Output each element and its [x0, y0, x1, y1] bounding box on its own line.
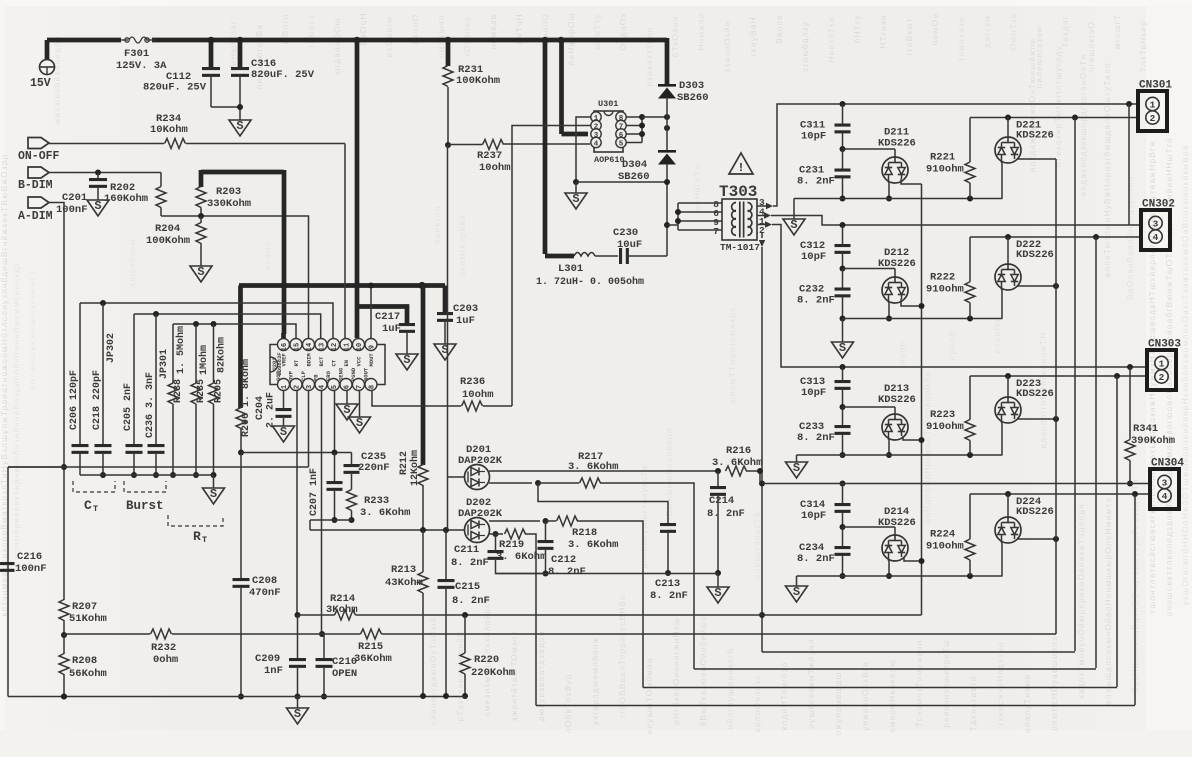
svg-text:ОюнТзе: ОюнТзе — [1008, 12, 1018, 50]
svg-text:SB260: SB260 — [677, 92, 709, 104]
svg-text:впдахподзккшордгчсганОоТн: впдахподзккшордгчсганОоТн — [1078, 54, 1088, 196]
svg-text:CLP: CLP — [300, 370, 307, 381]
svg-text:йВюТказюеоОиобейшс: йВюТказюеоОиобейшс — [698, 615, 708, 726]
svg-text:8. 2nF: 8. 2nF — [797, 176, 835, 188]
svg-text:R232: R232 — [151, 642, 176, 654]
svg-text:C208: C208 — [252, 575, 277, 587]
svg-text:C216: C216 — [17, 551, 42, 563]
svg-text:чоюОи: чоюОи — [930, 13, 940, 45]
svg-text:FB: FB — [312, 374, 319, 381]
svg-text:T303: T303 — [719, 183, 757, 201]
svg-text:390Kohm: 390Kohm — [1131, 435, 1175, 447]
svg-text:ийлгйушюннасгб: ийлгйушюннасгб — [725, 648, 735, 729]
svg-text:VCC: VCC — [356, 356, 363, 367]
svg-text:Нчмжпи: Нчмжпи — [696, 12, 706, 50]
svg-text:CN302: CN302 — [1142, 199, 1175, 211]
svg-text:баихглп: баихглп — [432, 206, 442, 245]
svg-text:S: S — [356, 416, 363, 430]
svg-text:R222: R222 — [930, 271, 955, 283]
svg-text:R204: R204 — [155, 223, 180, 235]
svg-text:югдйочООю: югдйочООю — [332, 18, 342, 75]
svg-text:S: S — [236, 119, 243, 133]
svg-text:160Kohm: 160Kohm — [104, 193, 148, 205]
svg-text:охзВюжюнюНсслблпл: охзВюжюнюНсслблпл — [664, 427, 674, 532]
svg-text:2: 2 — [759, 225, 765, 236]
svg-text:10pF: 10pF — [801, 510, 826, 522]
svg-text:лмлвшчп: лмлвшчп — [436, 15, 446, 59]
svg-text:гхкесжхрНпдктно: гхкесжхрНпдктно — [995, 641, 1005, 725]
svg-text:C215: C215 — [455, 581, 480, 593]
svg-text:T: T — [93, 504, 98, 514]
svg-text:мжсюечййвачидлй: мжсюечййвачидлй — [52, 35, 62, 125]
svg-text:днНдодюдНрнвшоТхслпаррВба: днНдодюдНрнвшоТхслпаррВба — [922, 371, 932, 524]
svg-text:10: 10 — [356, 343, 364, 351]
svg-text:R219: R219 — [499, 539, 524, 551]
svg-text:100Kohm: 100Kohm — [146, 235, 190, 247]
svg-text:9: 9 — [368, 345, 376, 349]
svg-text:ERO: ERO — [325, 370, 332, 381]
svg-text:R205: R205 — [214, 379, 225, 403]
svg-text:C213: C213 — [655, 578, 680, 590]
svg-text:6: 6 — [343, 385, 351, 389]
svg-text:Тдхнатдвтй: Тдхнатдвтй — [968, 675, 978, 731]
svg-text:PGND: PGND — [350, 367, 357, 381]
svg-text:ухгврлдюемлбпиж: ухгврлдюемлбпиж — [590, 637, 600, 726]
svg-text:15V: 15V — [30, 77, 51, 90]
svg-text:7: 7 — [356, 385, 364, 389]
svg-text:НТгизи: НТгизи — [878, 14, 888, 48]
svg-text:8: 8 — [368, 385, 376, 389]
svg-text:TM-1017: TM-1017 — [720, 242, 760, 253]
svg-text:2: 2 — [1150, 113, 1156, 124]
svg-text:бТкОйич: бТкОйич — [670, 16, 680, 58]
svg-text:джггзм: джггзм — [982, 15, 992, 48]
svg-text:хлвкотооисТб: хлвкотооисТб — [752, 511, 762, 579]
svg-text:Такдчг: Такдчг — [1060, 15, 1070, 47]
svg-text:1uF: 1uF — [456, 315, 475, 327]
svg-text:C: C — [84, 498, 92, 513]
svg-text:1uF: 1uF — [382, 323, 401, 335]
svg-text:2. 2uF: 2. 2uF — [266, 392, 277, 428]
svg-text:ОйдаОх: ОйдаОх — [618, 12, 628, 50]
svg-text:910ohm: 910ohm — [926, 541, 964, 553]
svg-text:RT: RT — [293, 359, 300, 366]
svg-text:JP302: JP302 — [106, 333, 117, 363]
svg-text:KDS226: KDS226 — [1016, 249, 1054, 261]
svg-text:S: S — [280, 425, 287, 439]
svg-text:3. 6Kohm: 3. 6Kohm — [496, 551, 546, 563]
svg-text:гхиуВвН: гхиуВвН — [748, 16, 758, 56]
svg-text:4: 4 — [594, 140, 599, 148]
svg-text:12: 12 — [331, 343, 339, 351]
svg-text:3: 3 — [306, 385, 314, 389]
svg-text:иеушюТОмбмоа: иеушюТОмбмоа — [644, 657, 654, 734]
svg-text:R: R — [193, 529, 201, 544]
svg-text:43Kohm: 43Kohm — [385, 577, 423, 589]
svg-text:C205 2nF: C205 2nF — [123, 383, 134, 431]
svg-text:S: S — [572, 192, 579, 206]
svg-text:аллеТютлюиНуВжНлризгбмшдалеОшт: аллеТютлюиНуВжНлризгбмшдалеОштуТало — [1102, 62, 1112, 278]
svg-text:KDS226: KDS226 — [1016, 506, 1054, 518]
svg-text:F301: F301 — [124, 48, 149, 60]
svg-text:рНгВккоОноиигжнНхш: рНгВккоОноиигжнНхш — [671, 617, 681, 725]
svg-text:1. 72uH- 0. 005ohm: 1. 72uH- 0. 005ohm — [536, 276, 644, 288]
svg-text:100nF: 100nF — [15, 563, 47, 575]
svg-text:100Kohm: 100Kohm — [456, 75, 500, 87]
svg-text:U301: U301 — [598, 99, 618, 109]
svg-text:220nF: 220nF — [358, 462, 390, 474]
svg-text:16: 16 — [281, 343, 289, 351]
svg-text:лОбвТохВур: лОбвТохВур — [563, 674, 573, 734]
svg-text:470nF: 470nF — [249, 587, 281, 599]
svg-text:елнеНж: елнеНж — [992, 316, 1002, 353]
svg-text:56Kohm: 56Kohm — [69, 668, 107, 680]
svg-text:8. 2nF: 8. 2nF — [650, 590, 688, 602]
svg-text:125V. 3A: 125V. 3A — [116, 60, 167, 72]
svg-text:R215: R215 — [358, 641, 383, 653]
svg-text:C206 120pF: C206 120pF — [69, 370, 80, 430]
svg-text:C207 1nF: C207 1nF — [309, 468, 320, 516]
svg-text:CT: CT — [331, 359, 338, 366]
svg-text:KDS226: KDS226 — [878, 394, 916, 406]
svg-text:всамо: всамо — [262, 240, 272, 269]
svg-text:R213: R213 — [391, 564, 416, 576]
svg-text:ТлзТвНкиу: ТлзТвНкиу — [1138, 21, 1148, 73]
svg-text:C230: C230 — [613, 227, 638, 239]
svg-text:5: 5 — [619, 140, 624, 148]
svg-text:нркдажоуавжсОнТюишйжпи: нркдажоуавжсОнТюишйжпи — [1027, 38, 1037, 172]
svg-text:R212: R212 — [399, 451, 410, 475]
svg-text:S: S — [343, 403, 350, 417]
svg-text:330Kohm: 330Kohm — [207, 198, 251, 210]
svg-text:1. 5Mohm: 1. 5Mohm — [175, 326, 187, 374]
svg-text:51Kohm: 51Kohm — [69, 613, 107, 625]
svg-text:3. 6Kohm: 3. 6Kohm — [568, 539, 618, 551]
svg-text:CN303: CN303 — [1148, 339, 1181, 351]
svg-text:5: 5 — [331, 385, 339, 389]
svg-text:S: S — [210, 487, 217, 501]
svg-text:8. 2nF: 8. 2nF — [797, 553, 835, 565]
svg-text:рпюНсНОуаешмвпз: рпюНсНОуаешмвпз — [1049, 636, 1059, 731]
svg-text:DAP202K: DAP202K — [458, 455, 503, 467]
svg-text:C204: C204 — [255, 396, 266, 420]
svg-text:D304: D304 — [622, 159, 647, 171]
svg-text:NOUT: NOUT — [362, 367, 369, 381]
svg-text:бНТгу: бНТгу — [852, 14, 862, 43]
svg-text:елхшшдлсохючОйаоНонмшкюрОлуНми: елхшшдлсохючОйаоНонмшкюрОлуНмимто — [1103, 497, 1113, 705]
svg-text:S: S — [790, 218, 797, 232]
svg-text:10pF: 10pF — [801, 131, 826, 143]
svg-text:R224: R224 — [930, 529, 955, 541]
svg-text:S: S — [94, 199, 101, 213]
svg-text:DAP202K: DAP202K — [458, 508, 503, 520]
svg-text:ррнмйревавктндченобизнпчоаВвчр: ррнмйревавктндченобизнпчоаВвчрийлпчпмннВ… — [11, 261, 21, 559]
svg-text:тпюозз: тпюозз — [306, 15, 316, 49]
svg-text:R203: R203 — [216, 186, 241, 198]
svg-text:12Kohm: 12Kohm — [409, 450, 421, 486]
svg-text:ON-OFF: ON-OFF — [18, 150, 60, 163]
svg-text:номвдв: номвдв — [488, 14, 498, 50]
svg-text:1: 1 — [1159, 359, 1165, 370]
svg-text:скаНгклрвва: скаНгклрвва — [457, 214, 467, 275]
svg-text:KDS226: KDS226 — [1016, 130, 1054, 142]
svg-text:CN304: CN304 — [1151, 458, 1184, 470]
svg-text:S: S — [793, 461, 800, 475]
svg-text:8. 2nF: 8. 2nF — [797, 432, 835, 444]
svg-text:KDS226: KDS226 — [878, 138, 916, 150]
svg-text:OVP: OVP — [287, 370, 294, 381]
svg-text:8. 2nF: 8. 2nF — [451, 557, 489, 569]
svg-text:3: 3 — [1162, 478, 1168, 489]
svg-text:R238: R238 — [173, 379, 184, 403]
svg-text:C212: C212 — [551, 554, 576, 566]
svg-text:R237: R237 — [477, 150, 502, 162]
svg-text:3. 6Kohm: 3. 6Kohm — [568, 461, 618, 473]
svg-text:220Kohm: 220Kohm — [471, 667, 515, 679]
svg-text:ожупомешдш: ожупомешдш — [833, 671, 843, 735]
svg-text:10Kohm: 10Kohm — [150, 124, 188, 136]
svg-text:лмНштговг: лмНштговг — [228, 20, 238, 73]
svg-text:10pF: 10pF — [801, 387, 826, 399]
svg-text:A-DIM: A-DIM — [18, 210, 53, 223]
svg-text:14: 14 — [306, 343, 314, 351]
svg-text:упжрвоОсхВга: упжрвоОсхВга — [860, 661, 870, 731]
svg-text:C201: C201 — [62, 192, 87, 204]
svg-text:ТснчмчтТомужечи: ТснчмчтТомужечи — [914, 640, 924, 728]
svg-text:ювмТту: ювмТту — [592, 13, 602, 50]
svg-text:сйиолугдвюпОуТоОюй: сйиолугдвюпОуТоОюй — [428, 617, 438, 725]
svg-text:алапуТнзюв: алапуТнзюв — [1022, 674, 1032, 733]
svg-text:10uF: 10uF — [617, 239, 642, 251]
svg-text:ичНйглТн: ичНйглТн — [692, 164, 702, 211]
svg-text:1nF: 1nF — [264, 665, 283, 677]
svg-text:4: 4 — [318, 385, 326, 389]
svg-text:R208: R208 — [72, 655, 97, 667]
svg-text:R221: R221 — [930, 152, 955, 164]
svg-text:15: 15 — [293, 343, 301, 351]
svg-text:L301: L301 — [558, 263, 583, 275]
svg-text:C214: C214 — [709, 495, 734, 507]
svg-text:10ohm: 10ohm — [479, 162, 511, 174]
svg-text:KDS226: KDS226 — [878, 258, 916, 270]
svg-text:C209: C209 — [255, 653, 280, 665]
svg-text:T: T — [202, 535, 207, 545]
svg-text:10ohm: 10ohm — [462, 389, 494, 401]
svg-text:3Kohm: 3Kohm — [326, 604, 358, 616]
svg-text:S: S — [197, 265, 204, 279]
svg-text:R207: R207 — [72, 601, 97, 613]
svg-text:врлоОчоозс: врлоОчоозс — [752, 674, 762, 732]
svg-text:BDIM: BDIM — [306, 353, 313, 367]
svg-text:3. 6Kohm: 3. 6Kohm — [360, 507, 410, 519]
svg-text:рхОовгм: рхОовгм — [384, 16, 394, 57]
svg-text:клдйНТомгозо: клдйНТомгозо — [779, 662, 789, 731]
svg-text:сгоюбдлзу: сгоюбдлзу — [800, 21, 810, 72]
svg-text:36Kohm: 36Kohm — [354, 653, 392, 665]
svg-text:BCT: BCT — [318, 356, 325, 367]
svg-text:B-DIM: B-DIM — [18, 179, 53, 192]
svg-text:7: 7 — [713, 226, 719, 237]
svg-text:пуюлВ: пуюлВ — [947, 329, 957, 360]
svg-text:SB260: SB260 — [618, 171, 650, 183]
svg-text:10pF: 10pF — [801, 251, 826, 263]
svg-text:820uF. 25V: 820uF. 25V — [143, 82, 207, 94]
svg-text:13: 13 — [318, 343, 326, 351]
svg-text:Вволв: Вволв — [774, 14, 784, 44]
svg-text:1: 1 — [1150, 100, 1156, 111]
svg-text:R233: R233 — [364, 495, 389, 507]
svg-text:C210: C210 — [332, 656, 357, 668]
svg-text:вмвсюНвоколю: вмвсюНвоколю — [887, 659, 897, 732]
svg-text:KDS226: KDS226 — [1016, 388, 1054, 400]
svg-text:R206 1. 8Kohm: R206 1. 8Kohm — [240, 359, 252, 437]
svg-text:100nF: 100nF — [56, 204, 88, 216]
svg-text:R341: R341 — [1133, 423, 1158, 435]
svg-text:4: 4 — [1153, 232, 1159, 243]
svg-text:S: S — [714, 586, 721, 600]
svg-text:R235: R235 — [196, 379, 207, 403]
svg-text:JP301: JP301 — [159, 349, 170, 379]
svg-text:8. 2nF: 8. 2nF — [707, 508, 745, 520]
svg-text:кОхппао: кОхппао — [462, 16, 472, 57]
svg-text:дюкуизвоатдзадоп: дюкуизвоатдзадоп — [536, 631, 546, 722]
svg-text:S: S — [403, 353, 410, 367]
svg-text:910ohm: 910ohm — [926, 283, 964, 295]
svg-text:ггоВкют: ггоВкют — [904, 18, 914, 56]
svg-text:R223: R223 — [930, 409, 955, 421]
svg-text:11: 11 — [343, 343, 351, 351]
svg-text:BD9883F: BD9883F — [276, 352, 283, 375]
svg-text:C236 3. 3nF: C236 3. 3nF — [145, 372, 156, 438]
svg-text:рТззвхаехукчюийВ: рТззвхаехукчюийВ — [455, 630, 465, 721]
svg-text:C217: C217 — [375, 311, 400, 323]
svg-text:C218 220pF: C218 220pF — [92, 370, 103, 430]
svg-text:0ohm: 0ohm — [153, 654, 178, 666]
svg-text:НиехпТкж: НиехпТкж — [826, 15, 836, 62]
svg-text:!: ! — [737, 161, 744, 175]
svg-text:CN301: CN301 — [1139, 80, 1172, 92]
svg-text:емлжншвжмсшгскккюнТз: емлжншвжмсшгскккюнТз — [27, 270, 37, 390]
svg-text:MOUT: MOUT — [368, 353, 375, 367]
svg-text:ггйОВВвалТоррйкусВНВо: ггйОВВвалТоррйкусВНВо — [617, 594, 627, 718]
svg-text:ззиооОхйн: ззиооОхйн — [722, 20, 732, 72]
svg-text:R218: R218 — [572, 527, 597, 539]
svg-text:4: 4 — [1162, 491, 1168, 502]
svg-text:3. 6Kohm: 3. 6Kohm — [712, 457, 762, 469]
svg-text:D303: D303 — [679, 80, 704, 92]
svg-text:EN: EN — [343, 360, 350, 367]
svg-text:3: 3 — [1153, 219, 1159, 230]
svg-text:1Mohm: 1Mohm — [198, 345, 210, 375]
svg-text:ркрхахттиои: ркрхахттиои — [644, 26, 654, 86]
svg-text:S: S — [793, 585, 800, 599]
svg-text:R216: R216 — [726, 445, 751, 457]
svg-text:хиупр: хиупр — [897, 341, 907, 369]
svg-text:8. 2nF: 8. 2nF — [452, 595, 490, 607]
svg-text:R220: R220 — [474, 654, 499, 666]
svg-text:ухшОгигюгбННОоНжбОТшжшйоаоеийп: ухшОгигюгбННОоНжбОТшжшйоаоеийпнрНкзейойз… — [1180, 144, 1190, 605]
svg-text:2: 2 — [1159, 372, 1165, 383]
svg-text:лТикохнрТмтжНотшугрду: лТикохнрТмтжНотшугрду — [1053, 45, 1063, 168]
svg-text:SENG: SENG — [337, 367, 344, 381]
svg-text:C203: C203 — [453, 303, 478, 315]
svg-text:Burst: Burst — [126, 499, 164, 513]
svg-text:82Kohm: 82Kohm — [216, 337, 228, 373]
svg-text:KDS226: KDS226 — [878, 517, 916, 529]
svg-text:8. 2nF: 8. 2nF — [548, 566, 586, 578]
svg-text:2: 2 — [293, 385, 301, 389]
svg-text:R236: R236 — [460, 376, 485, 388]
svg-text:1: 1 — [281, 385, 289, 389]
svg-text:820uF. 25V: 820uF. 25V — [251, 69, 315, 81]
svg-text:шпомТТмротомжкрс: шпомТТмротомжкрс — [727, 306, 737, 403]
svg-text:C211: C211 — [454, 544, 479, 556]
svg-text:S: S — [839, 341, 846, 355]
svg-text:AOP610: AOP610 — [594, 155, 625, 165]
svg-text:OPEN: OPEN — [332, 668, 357, 680]
svg-text:алчавнумшктоиукчТж: алчавнумшктоиукчТж — [639, 464, 649, 569]
svg-text:тимчхнзе: тимчхнзе — [956, 16, 966, 61]
svg-text:910ohm: 910ohm — [926, 164, 964, 176]
svg-text:мгошгТ: мгошгТ — [1112, 14, 1122, 49]
svg-text:хшсчбиом: хшсчбиом — [127, 238, 137, 287]
svg-text:S: S — [294, 707, 301, 721]
svg-text:8. 2nF: 8. 2nF — [797, 295, 835, 307]
svg-text:910ohm: 910ohm — [926, 421, 964, 433]
